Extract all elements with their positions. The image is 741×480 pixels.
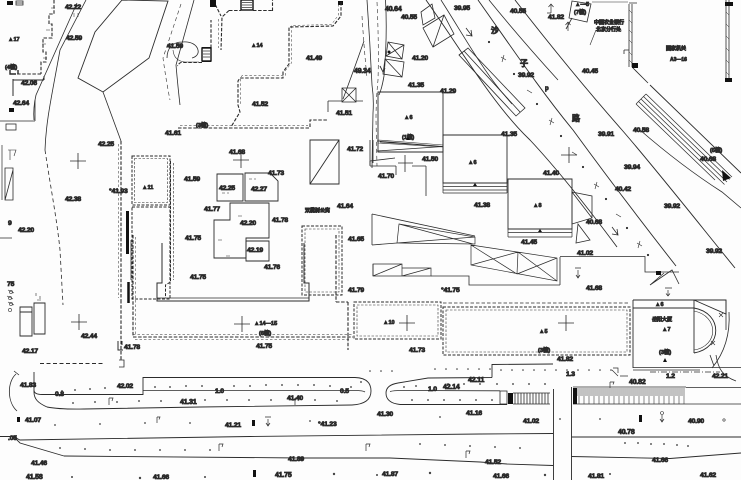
svg-text:41.87: 41.87: [382, 471, 398, 478]
svg-text:岳阳大厦: 岳阳大厦: [652, 316, 673, 323]
svg-text:▲5: ▲5: [539, 329, 548, 335]
svg-text:41.61: 41.61: [165, 130, 181, 137]
svg-text:▲14—15: ▲14—15: [254, 321, 277, 327]
svg-text:42.64: 42.64: [13, 100, 29, 107]
svg-text:41.62: 41.62: [700, 472, 716, 479]
svg-text:40.78: 40.78: [618, 429, 635, 436]
svg-text:▲10: ▲10: [383, 320, 395, 326]
svg-text:42.25: 42.25: [219, 185, 235, 192]
svg-text:41.51: 41.51: [336, 110, 352, 117]
svg-text:(4幢): (4幢): [5, 63, 17, 71]
svg-text:42.20: 42.20: [18, 227, 34, 234]
svg-text:▲—5: ▲—5: [575, 2, 589, 8]
svg-text:(5幢): (5幢): [710, 146, 722, 154]
svg-text:39.92: 39.92: [518, 72, 534, 79]
svg-text:41.59: 41.59: [167, 43, 183, 50]
svg-text:▲6: ▲6: [655, 302, 664, 308]
svg-text:1.2: 1.2: [666, 373, 675, 380]
svg-text:9: 9: [8, 220, 12, 227]
svg-text:41.73: 41.73: [409, 347, 425, 354]
svg-text:▲17: ▲17: [8, 37, 20, 43]
svg-text:41.21: 41.21: [225, 422, 241, 429]
svg-text:75: 75: [7, 281, 15, 288]
svg-text:(3幢): (3幢): [659, 348, 671, 356]
svg-text:41.02: 41.02: [523, 418, 539, 425]
svg-text:41.76: 41.76: [264, 264, 280, 271]
svg-text:42.21: 42.21: [712, 373, 728, 380]
svg-text:▲8: ▲8: [533, 203, 542, 209]
svg-text:42.27: 42.27: [251, 186, 267, 193]
svg-text:42.38: 42.38: [65, 196, 81, 203]
svg-text:41.68: 41.68: [586, 285, 602, 292]
svg-text:41.35: 41.35: [408, 82, 424, 89]
svg-text:39.94: 39.94: [624, 164, 640, 171]
svg-text:41.81: 41.81: [588, 473, 604, 480]
svg-text:42.14: 42.14: [443, 384, 460, 391]
svg-text:41.45: 41.45: [521, 239, 537, 246]
svg-text:42.20: 42.20: [240, 220, 256, 227]
svg-text:40.55: 40.55: [401, 14, 417, 21]
svg-text:41.75: 41.75: [256, 343, 272, 350]
svg-text:41.70: 41.70: [378, 173, 394, 180]
svg-text:▲7: ▲7: [662, 327, 671, 333]
svg-text:41.35: 41.35: [501, 131, 517, 138]
svg-text:49.34: 49.34: [354, 68, 371, 75]
svg-text:41.75: 41.75: [185, 235, 201, 242]
svg-text:40.55: 40.55: [510, 8, 526, 15]
svg-text:41.79: 41.79: [348, 287, 364, 294]
svg-text:39.91: 39.91: [598, 131, 614, 138]
svg-text:42.19: 42.19: [247, 247, 263, 254]
svg-text:41.77: 41.77: [204, 206, 220, 213]
svg-text:40.90: 40.90: [688, 418, 704, 425]
svg-text:42.22: 42.22: [65, 4, 81, 11]
svg-text:42.17: 42.17: [22, 348, 38, 355]
svg-text:▲6: ▲6: [404, 115, 413, 121]
svg-text:°41.93: °41.93: [109, 187, 128, 195]
svg-text:国家机关: 国家机关: [666, 45, 686, 52]
svg-text:1.0: 1.0: [428, 386, 437, 393]
svg-text:0.8: 0.8: [55, 391, 64, 398]
svg-text:41.64: 41.64: [337, 203, 353, 210]
svg-text:41.78: 41.78: [124, 344, 140, 351]
svg-text:41.68: 41.68: [229, 149, 245, 156]
svg-text:41.16: 41.16: [466, 410, 482, 417]
svg-text:A3—16: A3—16: [670, 57, 687, 63]
svg-text:42.25: 42.25: [98, 141, 114, 148]
svg-text:双榄树公寓: 双榄树公寓: [305, 207, 330, 214]
svg-text:41.20: 41.20: [412, 55, 428, 62]
svg-text:路: 路: [572, 113, 581, 123]
svg-text:41.30: 41.30: [377, 411, 393, 418]
svg-text:41.02: 41.02: [577, 250, 593, 257]
svg-text:°41.23: °41.23: [318, 420, 337, 428]
svg-text:0.5: 0.5: [340, 388, 349, 395]
svg-text:41.66: 41.66: [153, 474, 169, 480]
svg-text:▲11: ▲11: [142, 185, 153, 191]
svg-text:北京分行处: 北京分行处: [596, 26, 622, 33]
svg-text:41.07: 41.07: [25, 417, 41, 424]
svg-text:(3幢): (3幢): [538, 346, 550, 354]
svg-text:(3幢): (3幢): [196, 121, 208, 129]
svg-text:.05: .05: [8, 435, 17, 442]
svg-text:41.75: 41.75: [190, 274, 206, 281]
svg-text:(7幢): (7幢): [574, 8, 586, 16]
svg-text:41.52: 41.52: [485, 459, 501, 466]
svg-text:中国农业银行: 中国农业银行: [594, 19, 624, 26]
svg-text:41.38: 41.38: [474, 202, 490, 209]
svg-text:41.75: 41.75: [275, 472, 292, 479]
svg-text:41.89: 41.89: [288, 456, 304, 463]
svg-text:42.59: 42.59: [66, 35, 82, 42]
svg-text:▲6: ▲6: [468, 160, 477, 166]
svg-text:42.02: 42.02: [117, 383, 133, 390]
svg-text:39.92: 39.92: [664, 203, 680, 210]
svg-text:41.78: 41.78: [272, 217, 288, 224]
svg-text:°41.75: °41.75: [441, 286, 460, 294]
svg-text:39.95: 39.95: [454, 5, 470, 12]
svg-text:41.65: 41.65: [348, 236, 364, 243]
svg-text:41.58: 41.58: [26, 474, 43, 480]
svg-text:42.11: 42.11: [468, 377, 484, 384]
svg-text:42.44: 42.44: [81, 333, 97, 340]
svg-text:41.66: 41.66: [652, 457, 668, 464]
svg-text:41.82: 41.82: [557, 356, 573, 363]
svg-text:1.0: 1.0: [215, 388, 224, 395]
svg-text:39.92: 39.92: [706, 248, 722, 255]
svg-text:40.64: 40.64: [385, 6, 402, 13]
svg-text:41.46: 41.46: [31, 460, 47, 467]
svg-text:41.29: 41.29: [440, 88, 456, 95]
svg-text:40.42: 40.42: [615, 186, 631, 193]
svg-text:40.82: 40.82: [629, 379, 646, 386]
svg-text:▲14: ▲14: [251, 43, 264, 49]
svg-text:41.66: 41.66: [493, 473, 509, 480]
svg-text:41.72: 41.72: [347, 146, 363, 153]
svg-text:41.82: 41.82: [548, 14, 564, 21]
svg-text:41.50: 41.50: [422, 156, 438, 163]
svg-text:子: 子: [520, 59, 528, 68]
svg-text:41.59: 41.59: [184, 176, 200, 183]
svg-text:40.45: 40.45: [582, 68, 598, 75]
svg-text:p: p: [545, 86, 549, 92]
svg-text:1.3: 1.3: [566, 371, 575, 378]
svg-text:41.52: 41.52: [252, 101, 268, 108]
svg-text:(6幢): (6幢): [259, 329, 271, 337]
svg-text:40.58: 40.58: [633, 127, 649, 134]
svg-text:沙: 沙: [491, 26, 499, 35]
svg-text:41.49: 41.49: [306, 55, 322, 62]
svg-text:42.06: 42.06: [21, 80, 37, 87]
